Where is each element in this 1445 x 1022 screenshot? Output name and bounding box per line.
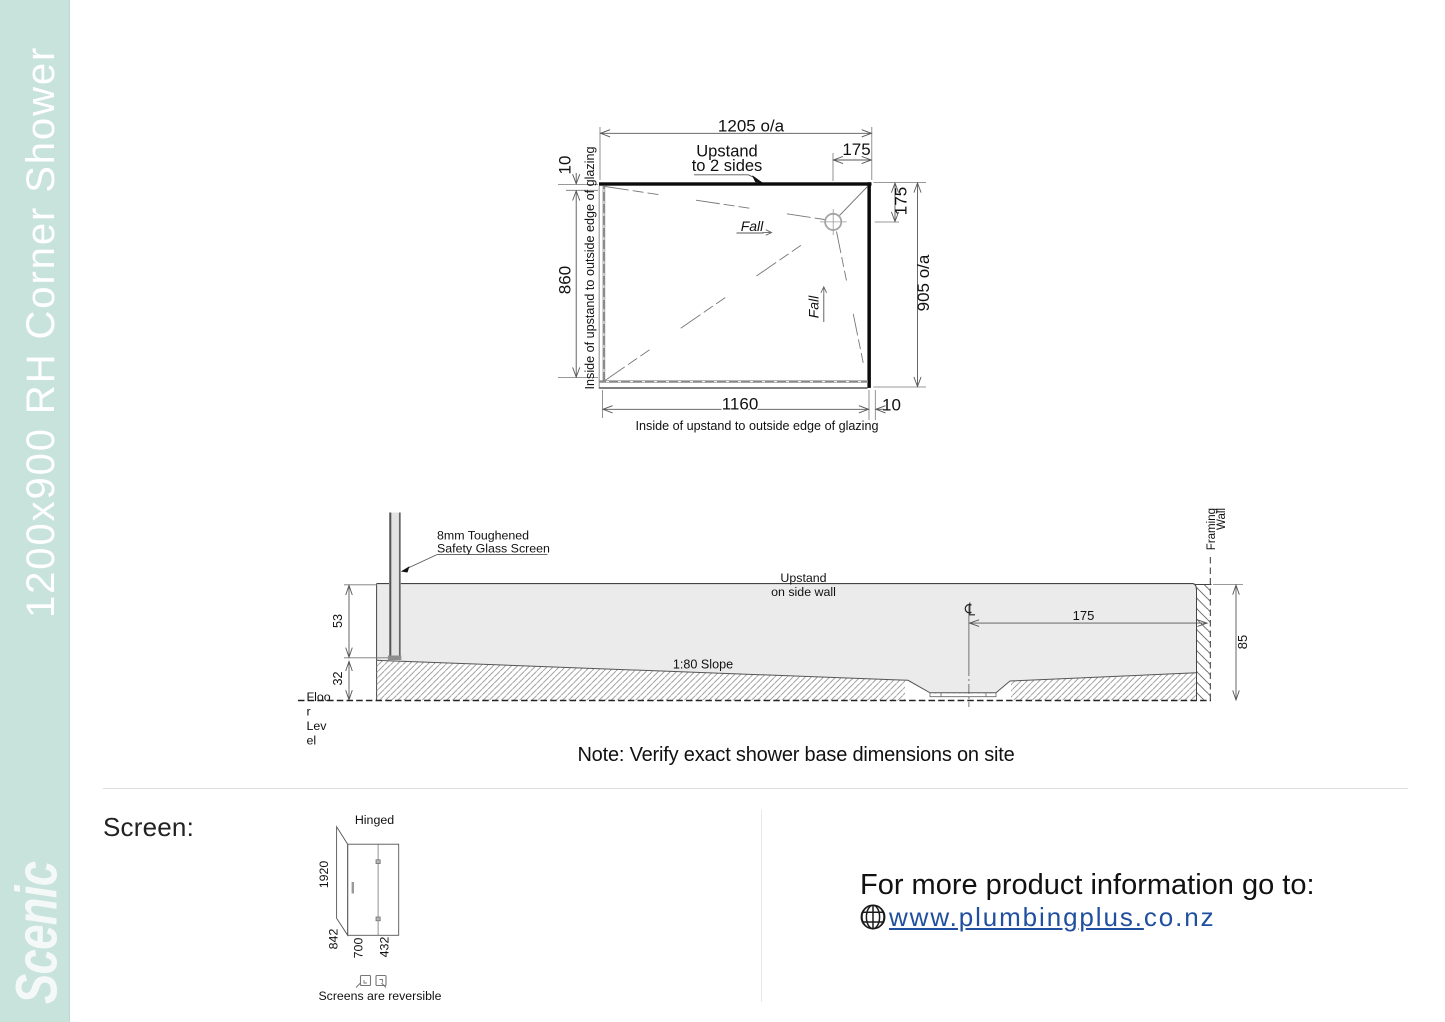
svg-text:175: 175 — [892, 187, 911, 215]
svg-text:10: 10 — [882, 396, 901, 415]
svg-text:175: 175 — [1073, 608, 1095, 623]
svg-text:175: 175 — [842, 140, 870, 159]
svg-text:Inside of upstand to outside e: Inside of upstand to outside edge of gla… — [583, 147, 597, 390]
svg-text:r: r — [307, 705, 311, 719]
svg-text:860: 860 — [556, 266, 575, 294]
svg-text:Fall: Fall — [741, 218, 764, 234]
svg-text:8mm Toughened: 8mm Toughened — [437, 529, 529, 543]
svg-text:el: el — [307, 734, 317, 748]
svg-text:842: 842 — [327, 929, 341, 950]
svg-text:Upstand: Upstand — [780, 571, 826, 585]
svg-text:53: 53 — [331, 614, 345, 628]
svg-text:on side wall: on side wall — [771, 585, 836, 599]
svg-text:Wall: Wall — [1216, 508, 1228, 530]
svg-text:700: 700 — [352, 938, 366, 959]
svg-text:905 o/a: 905 o/a — [914, 254, 933, 311]
svg-text:Fall: Fall — [806, 295, 822, 318]
svg-text:Hinged: Hinged — [355, 813, 394, 827]
svg-text:Safety Glass Screen: Safety Glass Screen — [437, 542, 550, 556]
svg-text:1205 o/a: 1205 o/a — [718, 117, 785, 136]
svg-text:to 2 sides: to 2 sides — [692, 157, 763, 175]
svg-text:Inside of upstand to outside e: Inside of upstand to outside edge of gla… — [636, 419, 879, 433]
svg-text:85: 85 — [1235, 635, 1250, 649]
svg-text:432: 432 — [378, 937, 392, 958]
svg-text:32: 32 — [331, 671, 345, 685]
svg-text:Lev: Lev — [307, 719, 328, 733]
svg-text:1920: 1920 — [317, 861, 331, 889]
svg-text:1160: 1160 — [722, 395, 759, 414]
svg-text:10: 10 — [556, 156, 575, 175]
svg-text:Floo: Floo — [307, 690, 331, 704]
svg-text:1:80 Slope: 1:80 Slope — [673, 658, 733, 672]
